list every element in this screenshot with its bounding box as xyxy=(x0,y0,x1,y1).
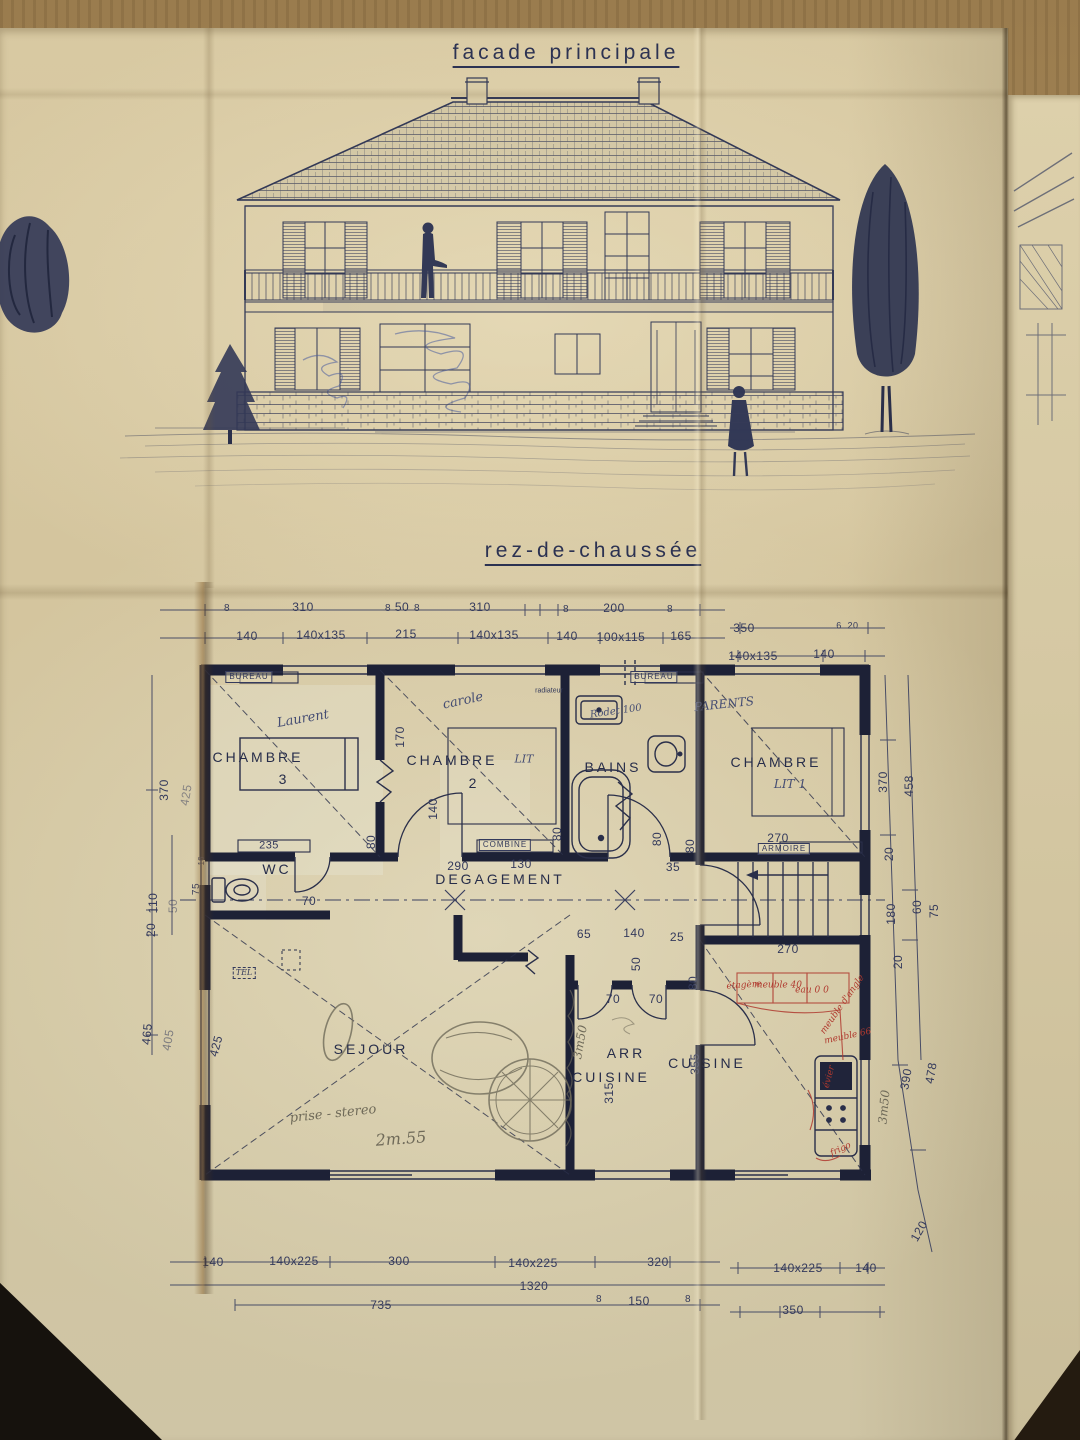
dimension-label: 50 xyxy=(167,899,179,913)
dimension-label: 80 xyxy=(651,832,663,846)
furniture-label: COMBINE xyxy=(479,839,531,851)
room-name-label: CHAMBRE xyxy=(212,750,303,764)
dimension-label: 75 xyxy=(928,904,940,918)
dimension-label: 65 xyxy=(577,928,591,940)
dimension-label: 310 xyxy=(469,601,491,613)
dimension-label: 70 xyxy=(606,993,620,1005)
pencil-sketches xyxy=(318,990,634,1146)
dimension-label: 50 xyxy=(630,957,642,971)
dimension-label: 75 xyxy=(192,883,202,895)
room-name-label: CHAMBRE xyxy=(406,753,497,767)
red-ink-note: eau 0 0 xyxy=(795,987,829,996)
stairs xyxy=(738,862,828,937)
dimension-label: 478 xyxy=(923,1061,939,1084)
dimension-label: 20 xyxy=(892,955,904,969)
dimension-label: 140 xyxy=(427,798,439,820)
dimension-label: 270 xyxy=(777,943,799,955)
dimension-label: 215 xyxy=(395,628,417,640)
poplar-tree-right xyxy=(852,164,919,434)
dimension-label: 110 xyxy=(147,893,159,914)
pencil-note: 3m50 xyxy=(877,1089,892,1124)
dimension-label: 50 xyxy=(395,601,409,613)
photo-of-architectural-drawing: facade principale rez-de-chaussée xyxy=(0,0,1080,1440)
dimension-label: 80 xyxy=(365,835,377,849)
dimension-label: 8 xyxy=(667,605,673,615)
tiny-note: 16 xyxy=(198,857,206,866)
facade-title: facade principale xyxy=(453,41,680,65)
room-name-label: WC xyxy=(262,862,291,876)
room-name-label: BAINS xyxy=(584,760,641,774)
dimension-label: 465 xyxy=(140,1023,154,1045)
dimension-label: 8 xyxy=(596,1295,602,1305)
dimension-label: 320 xyxy=(647,1256,669,1268)
dimension-label: 140x135 xyxy=(728,650,778,662)
dimension-label: 735 xyxy=(370,1299,392,1311)
dimension-label: 140 xyxy=(202,1256,224,1268)
dimension-label: 8 xyxy=(685,1295,691,1305)
furniture-label: ARMOIRE xyxy=(758,843,810,855)
room-name-label: CUISINE xyxy=(572,1070,650,1084)
dimension-label: 425 xyxy=(178,783,194,806)
dimension-label: 25 xyxy=(670,931,684,943)
section-drawing-fragment xyxy=(1008,95,1080,515)
stone-base xyxy=(237,392,843,430)
dimension-label: 165 xyxy=(670,630,692,642)
dimension-label: 8 xyxy=(414,604,420,614)
dimension-label: 140x135 xyxy=(469,629,519,641)
center-axis xyxy=(180,890,885,910)
dimension-label: 20 xyxy=(847,622,858,631)
dimension-label: 140 xyxy=(855,1262,877,1274)
dimension-label: 150 xyxy=(628,1295,650,1307)
dimension-label: 35 xyxy=(666,861,680,873)
dimension-label: 80 xyxy=(551,827,563,841)
dimension-label: 1320 xyxy=(520,1280,549,1292)
dimension-label: 170 xyxy=(394,726,406,748)
ground-hatching xyxy=(120,428,975,490)
dimension-label: 70 xyxy=(649,993,663,1005)
dimension-label: 140 xyxy=(623,927,645,939)
dimension-label: 140x225 xyxy=(508,1257,558,1269)
pencil-note: 2m.55 xyxy=(375,1129,427,1149)
dimension-label: 235 xyxy=(259,841,279,852)
dimension-label: 8 xyxy=(385,604,391,614)
dimension-label: 405 xyxy=(160,1028,176,1051)
dimension-label: 310 xyxy=(292,601,314,613)
upper-floor-windows xyxy=(283,212,790,300)
dimension-label: 8 xyxy=(563,605,569,615)
dimension-label: 370 xyxy=(158,779,170,801)
room-name-label: 3 xyxy=(279,772,290,786)
handwritten-note: LIT 1 xyxy=(774,778,806,790)
dimension-label: 100x115 xyxy=(597,631,646,643)
dimension-label: 20 xyxy=(145,923,157,937)
room-name-label: SEJOUR xyxy=(334,1042,409,1056)
floor-plan-drawing xyxy=(140,590,960,1330)
dimension-label: 70 xyxy=(302,895,316,907)
floor-plan-title: rez-de-chaussée xyxy=(485,539,701,563)
facade-elevation-drawing xyxy=(95,72,1015,502)
handwritten-note: LIT xyxy=(515,754,534,765)
room-name-label: CHAMBRE xyxy=(730,755,821,769)
dimension-label: 60 xyxy=(911,900,923,914)
dimension-label: 6 xyxy=(836,622,842,631)
tiny-note: radiateur xyxy=(535,688,563,695)
dimension-label: 140 xyxy=(556,630,578,642)
furniture-label: BUREAU xyxy=(630,671,677,683)
dimension-label: 350 xyxy=(782,1304,804,1316)
dimension-label: 80 xyxy=(684,839,696,853)
dimension-label: 300 xyxy=(388,1255,410,1267)
roof xyxy=(237,78,840,206)
dimension-label: 140x135 xyxy=(296,629,346,641)
room-name-label: 2 xyxy=(469,776,480,790)
dimension-label: 140 xyxy=(813,648,835,660)
dimension-label: 200 xyxy=(603,602,625,614)
dimension-label: 180 xyxy=(885,903,897,925)
dimension-label: 80 xyxy=(687,976,699,990)
dimension-label: 130 xyxy=(510,858,532,870)
dimension-label: 8 xyxy=(224,604,230,614)
room-name-label: CUISINE xyxy=(668,1056,746,1070)
tree-sketch-left-edge xyxy=(0,205,85,355)
dimension-label: 370 xyxy=(877,771,889,793)
furniture-label: TEL xyxy=(233,967,256,979)
dimension-label: 20 xyxy=(883,847,895,861)
dimension-label: 458 xyxy=(903,775,915,797)
dimension-label: 350 xyxy=(733,622,755,634)
dimension-label: 390 xyxy=(898,1067,914,1090)
dimension-label: 315 xyxy=(603,1082,615,1104)
room-name-label: ARR xyxy=(607,1046,646,1060)
dimension-label: 140 xyxy=(236,630,258,642)
furniture-label: BUREAU xyxy=(225,671,272,683)
room-name-label: DEGAGEMENT xyxy=(435,872,565,886)
dimension-label: 140x225 xyxy=(773,1262,823,1274)
dimension-label: 140x225 xyxy=(269,1255,319,1267)
